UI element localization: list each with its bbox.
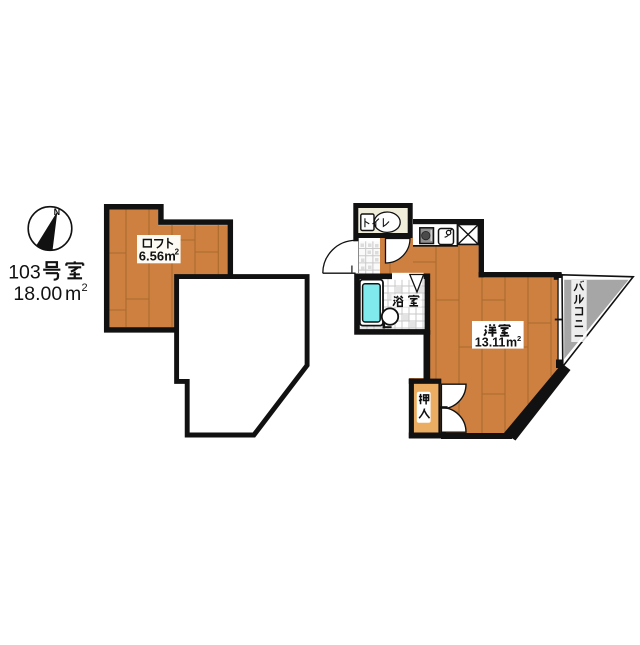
svg-text:2: 2 [175,248,180,257]
svg-text:103: 103 [8,261,41,283]
svg-text:6.56: 6.56 [139,248,164,263]
svg-text:13.11: 13.11 [475,335,506,349]
svg-text:2: 2 [517,334,521,343]
svg-text:2: 2 [82,282,88,294]
svg-text:m: m [65,283,81,305]
svg-text:m: m [506,335,517,349]
svg-text:N: N [54,207,61,217]
svg-text:18.00: 18.00 [13,283,62,305]
